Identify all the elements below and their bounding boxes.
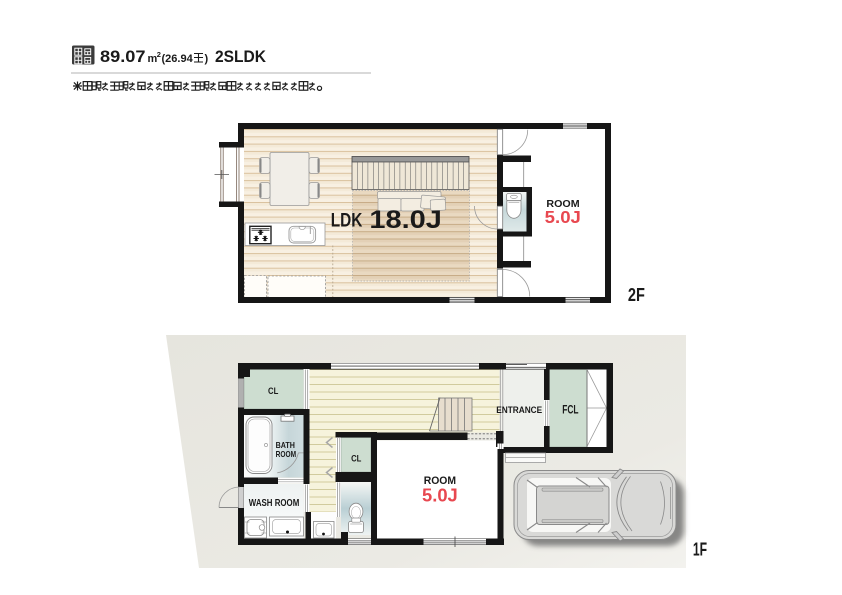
svg-text:18.0J: 18.0J (369, 207, 442, 234)
svg-text:5.0J: 5.0J (545, 207, 581, 227)
svg-text:(26.94: (26.94 (162, 53, 194, 65)
svg-text:ROOM: ROOM (276, 449, 297, 459)
svg-text:ENTRANCE: ENTRANCE (496, 404, 542, 415)
svg-text:): ) (205, 53, 209, 65)
svg-text:2SLDK: 2SLDK (215, 48, 266, 66)
svg-text:LDK: LDK (331, 211, 363, 232)
svg-text:89.07: 89.07 (100, 48, 146, 66)
svg-text:WASH ROOM: WASH ROOM (249, 498, 299, 509)
svg-text:FCL: FCL (562, 403, 578, 417)
svg-text:5.0J: 5.0J (422, 486, 458, 506)
svg-text:CL: CL (351, 454, 362, 464)
svg-text:2: 2 (157, 50, 161, 59)
svg-text:1F: 1F (693, 540, 707, 560)
svg-text:CL: CL (268, 386, 279, 396)
svg-text:2F: 2F (628, 285, 645, 305)
